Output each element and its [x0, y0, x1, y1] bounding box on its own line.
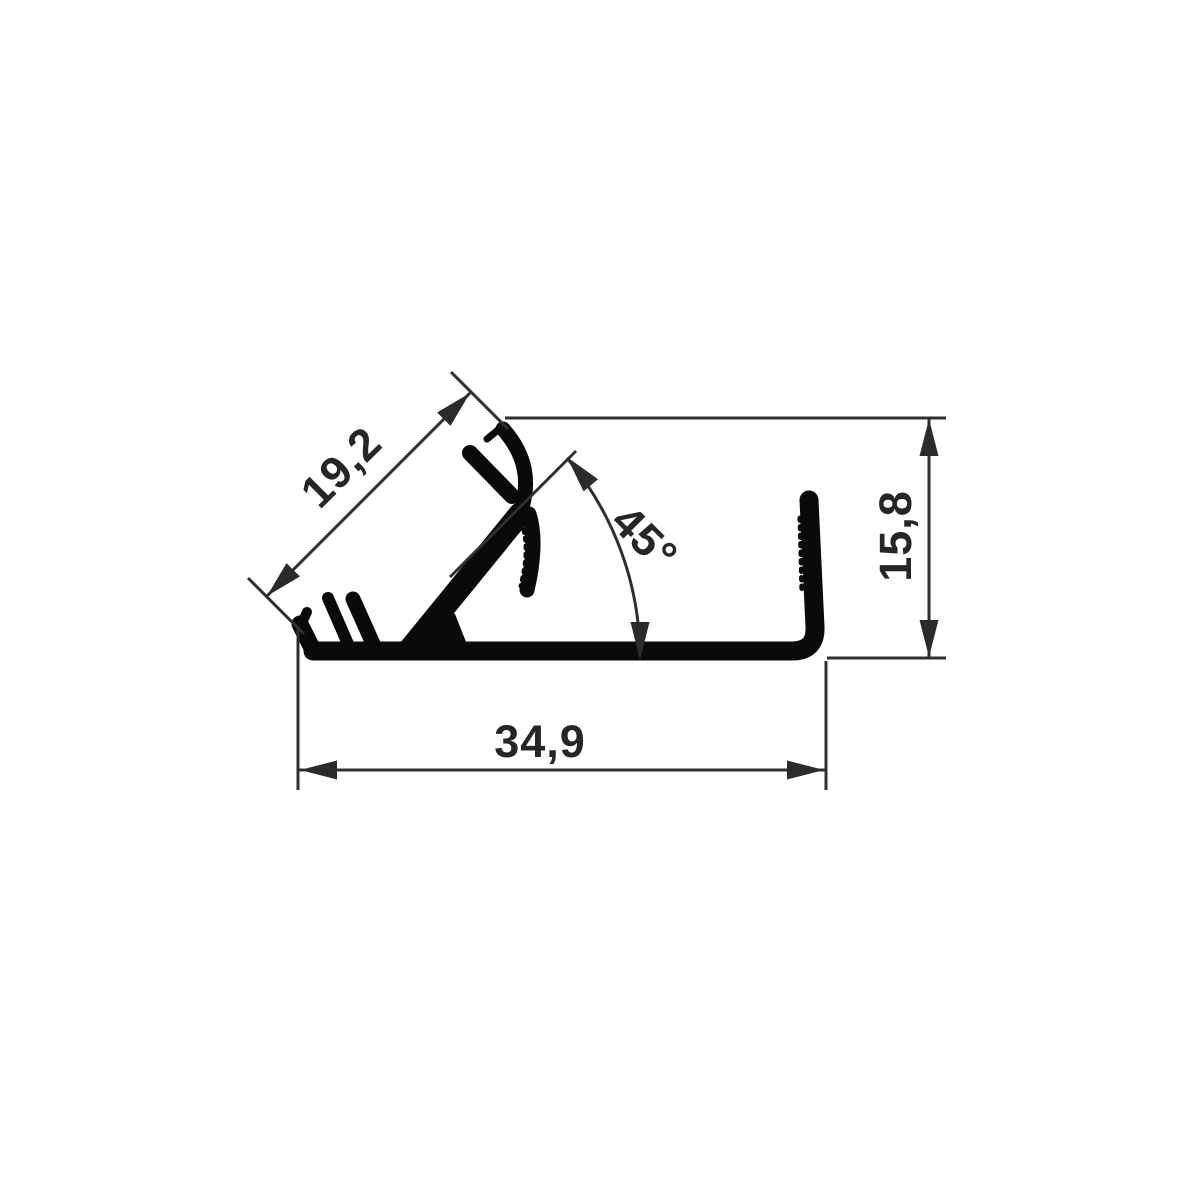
profile-fork-left-prong — [328, 598, 348, 644]
profile-finger-serrations — [521, 530, 526, 586]
dimension-label-width: 34,9 — [494, 716, 586, 767]
profile-serrated-finger — [527, 514, 533, 590]
profile-diagonal-arm — [410, 514, 520, 649]
profile-upper-branch — [470, 453, 512, 496]
arrowhead-down — [920, 620, 939, 657]
dimension-label-angle: 45° — [602, 495, 688, 581]
dimension-label-arm-length: 19,2 — [291, 417, 392, 518]
dimension-label-height: 15,8 — [870, 490, 921, 582]
arrowhead-right — [787, 761, 824, 780]
profile-base-and-right-arm — [313, 500, 815, 651]
profile-right-arm-serrations — [800, 518, 802, 594]
profile-drawing-svg: 19,2 45° 15,8 34,9 — [0, 0, 1200, 1200]
arrowhead-up — [920, 419, 939, 456]
drawing-canvas: 19,2 45° 15,8 34,9 — [0, 0, 1200, 1200]
profile-hook-tip-notch — [487, 430, 498, 439]
arrowhead-arc-top — [567, 457, 598, 491]
profile-left-lip — [301, 612, 307, 625]
dimension-line — [267, 393, 470, 596]
arrowhead-left — [300, 761, 337, 780]
profile-fork-right-prong — [353, 599, 374, 646]
angle-ray-line — [450, 451, 576, 577]
